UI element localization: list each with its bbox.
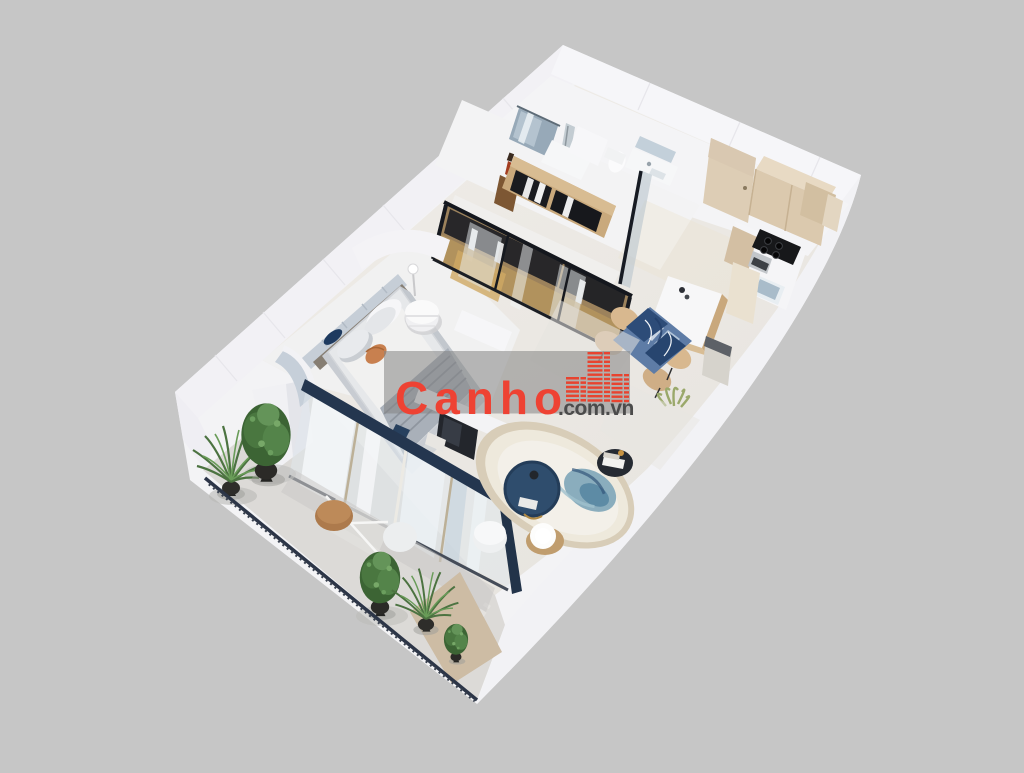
svg-text:.com.vn: .com.vn xyxy=(558,397,634,420)
svg-text:Canho: Canho xyxy=(395,372,568,424)
